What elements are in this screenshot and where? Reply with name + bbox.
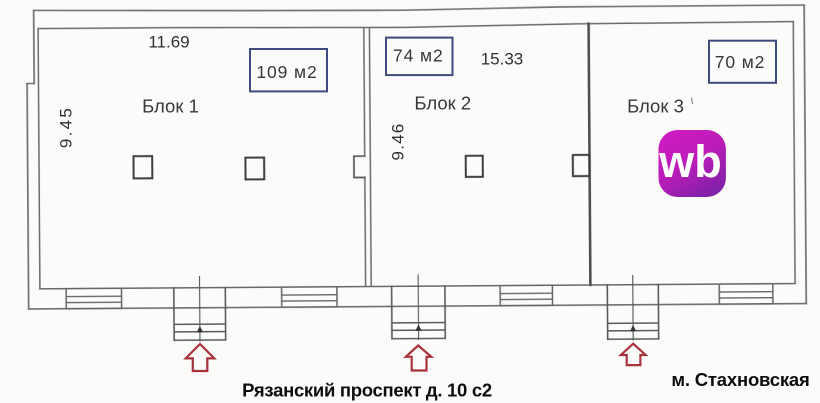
svg-text:9.45: 9.45	[57, 106, 76, 148]
svg-text:м. Стахновская: м. Стахновская	[671, 369, 809, 390]
svg-text:74 м2: 74 м2	[393, 46, 444, 66]
svg-text:wb: wb	[658, 136, 722, 187]
svg-text:70 м2: 70 м2	[715, 52, 766, 72]
svg-text:Блок 2: Блок 2	[414, 93, 471, 114]
svg-text:15.33: 15.33	[481, 50, 524, 69]
svg-text:109 м2: 109 м2	[256, 62, 317, 82]
svg-text:Блок 1: Блок 1	[142, 96, 199, 117]
svg-text:9.46: 9.46	[389, 123, 408, 161]
svg-text:Рязанский проспект д. 10 с2: Рязанский проспект д. 10 с2	[242, 380, 492, 401]
svg-text:11.69: 11.69	[148, 32, 189, 51]
svg-text:Блок 3: Блок 3	[627, 96, 684, 117]
